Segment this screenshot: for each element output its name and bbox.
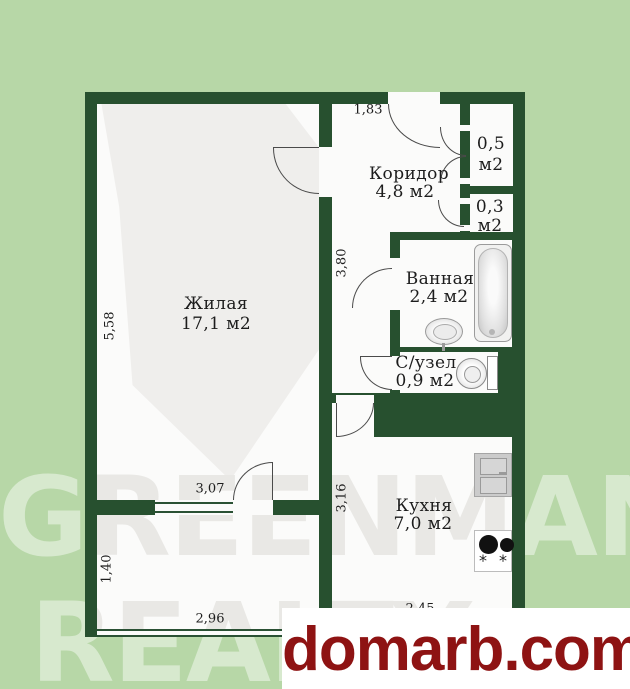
dimension-entry-width: 1,83 [354,103,383,118]
burner-icon [500,538,514,552]
floor-plan-image: GREENMAN REALTY GREENMAN REALTY GREENMAN… [0,0,630,689]
sink-tap-icon [442,343,445,351]
burner-flame-icon: * [499,556,507,566]
kitchen-area: 7,0 м2 [394,514,453,534]
kitchen-label: Кухня [396,496,453,516]
watermark-realty: REALTY [332,588,470,608]
dimension-balcony-height: 1,40 [100,555,115,584]
dimension-corridor-height: 3,80 [335,249,350,278]
corridor-area: 4,8 м2 [376,182,435,202]
watermark-greenman: GREENMAN [97,515,319,572]
dimension-living-height: 5,58 [103,312,118,341]
dimension-kitchen-height: 3,16 [335,484,350,513]
corridor-label: Коридор [369,164,449,184]
wc-door-leaf [360,356,392,357]
bathroom-area: 2,4 м2 [410,287,469,307]
closet-large-unit: м2 [479,155,504,175]
closet-large-area: 0,5 [477,134,505,154]
dimension-living-width: 3,07 [196,482,225,497]
living-door-leaf [273,147,319,148]
site-banner: domarb.com [282,608,630,689]
bathroom-label: Ванная [406,269,475,289]
sink-icon [425,318,463,345]
dimension-balcony-width: 2,96 [196,612,225,627]
kitchen-cabinet-icon [474,453,512,497]
burner-flame-icon: * [479,556,487,566]
balcony-door-opening [233,500,273,515]
toilet-icon [456,358,487,389]
living-door-opening [319,147,332,197]
toilet-tank-icon [487,356,498,390]
closet-small-unit: м2 [478,216,503,236]
closet-small-area: 0,3 [476,197,504,217]
balcony-door-leaf [272,462,273,500]
living-room-area: 17,1 м2 [181,314,251,334]
entrance-door-opening [388,92,440,104]
site-logo: domarb.com [282,608,630,689]
bathtub-icon [474,244,512,342]
living-window [155,500,233,515]
wc-label: С/узел [395,353,456,373]
wc-area: 0,9 м2 [396,371,455,391]
kitchen-door-opening [336,395,374,403]
balcony-left-wall [85,608,97,637]
living-room-label: Жилая [184,294,248,314]
